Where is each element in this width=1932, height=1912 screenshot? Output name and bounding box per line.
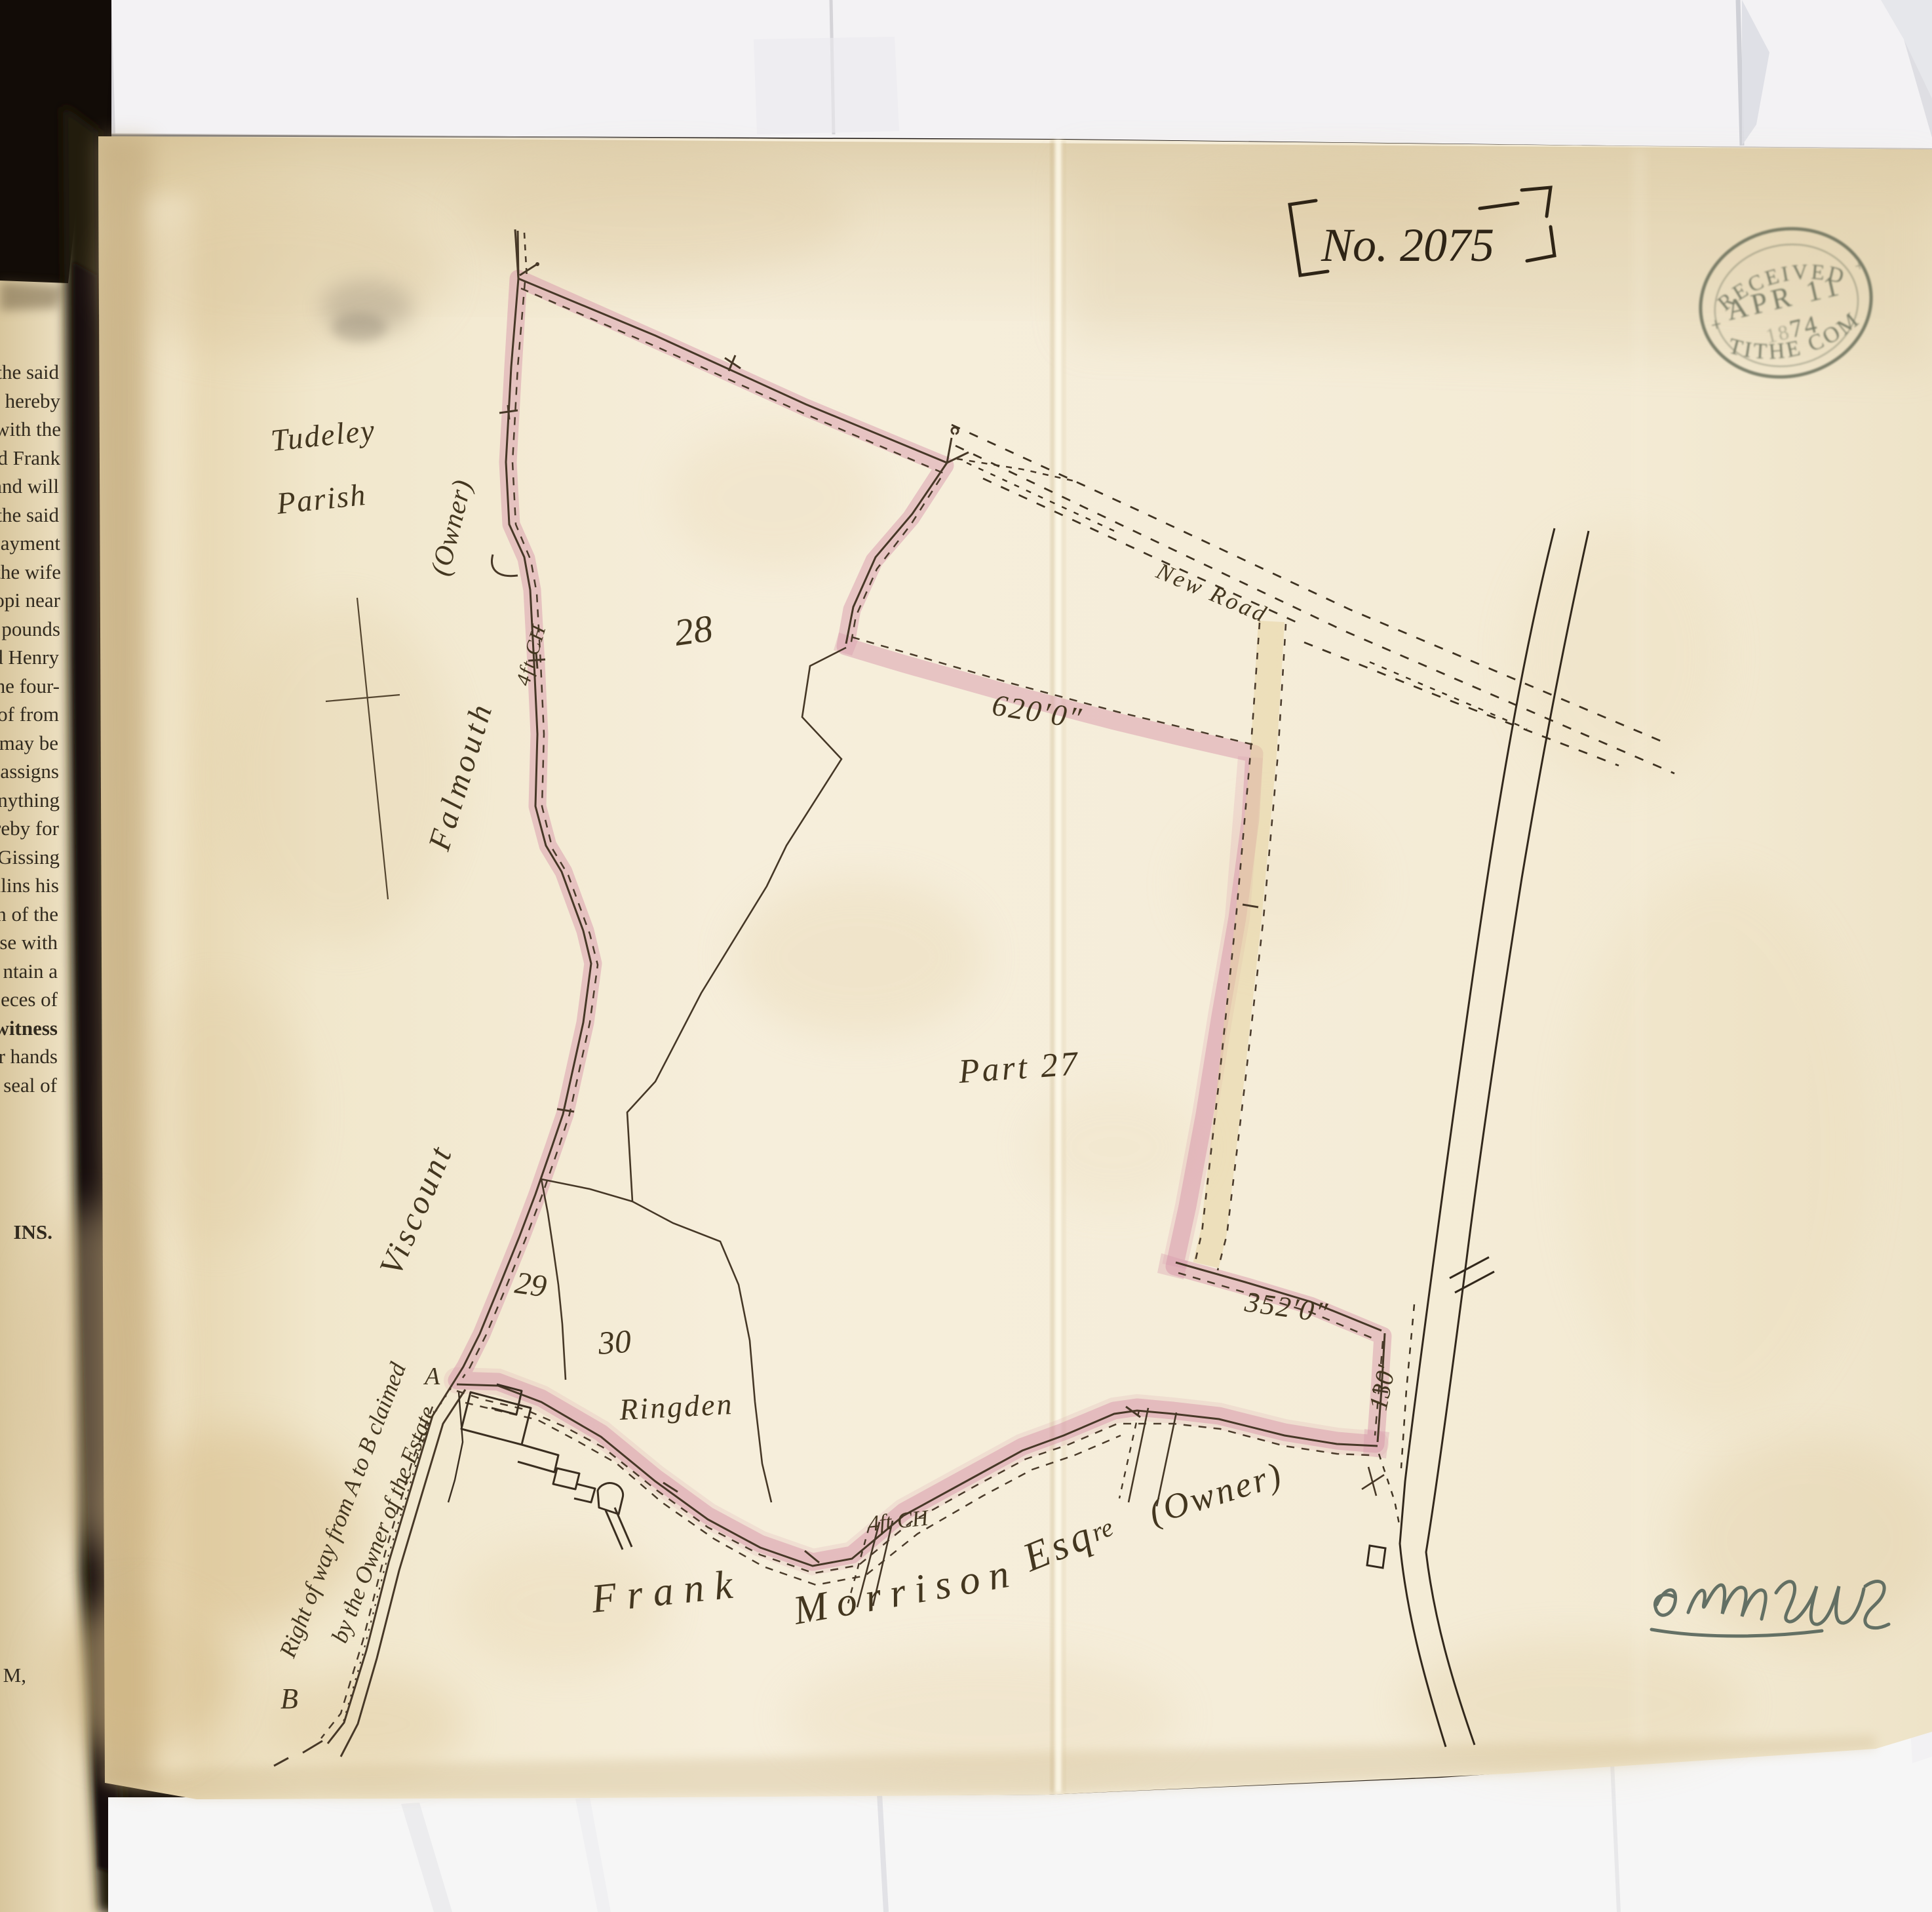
svg-text:A: A: [423, 1363, 440, 1390]
svg-text:r assigns: r assigns: [0, 760, 59, 783]
svg-text:29: 29: [512, 1265, 549, 1304]
svg-text:ereby for: ereby for: [0, 817, 60, 840]
svg-text:n of the: n of the: [0, 903, 58, 926]
svg-text:witness: witness: [0, 1017, 58, 1040]
svg-text:the four-: the four-: [0, 674, 60, 697]
svg-text:the said: the said: [0, 503, 59, 526]
svg-text:t with the: t with the: [0, 418, 61, 440]
svg-text:Gissing: Gissing: [0, 846, 60, 868]
svg-text:d pounds: d pounds: [0, 617, 60, 640]
svg-text:se with: se with: [0, 931, 58, 954]
svg-text:l of from: l of from: [0, 703, 59, 726]
svg-text:el the wife: el the wife: [0, 560, 61, 583]
svg-text:anything: anything: [0, 789, 60, 811]
svg-text:ntain a: ntain a: [3, 960, 58, 983]
svg-text:eces of: eces of: [1, 988, 58, 1011]
svg-text:r hands: r hands: [0, 1045, 58, 1068]
svg-text:B: B: [280, 1683, 298, 1715]
svg-text:e payment: e payment: [0, 532, 60, 555]
svg-text:of the said: of the said: [0, 361, 59, 383]
svg-text:d Henry: d Henry: [0, 646, 59, 669]
svg-text:INS.: INS.: [14, 1220, 52, 1243]
svg-text:M,: M,: [3, 1664, 26, 1687]
svg-text:seal of: seal of: [3, 1074, 57, 1097]
svg-text:th hereby: th hereby: [0, 389, 60, 412]
svg-text:30: 30: [596, 1323, 632, 1361]
svg-text:aid Frank: aid Frank: [0, 446, 60, 469]
svg-text:Ringden: Ringden: [618, 1387, 735, 1426]
svg-text:ll and will: ll and will: [0, 475, 59, 498]
svg-text:28: 28: [672, 606, 715, 654]
svg-text:may be: may be: [0, 732, 58, 754]
svg-text:llins his: llins his: [0, 874, 59, 897]
svg-text:No. 2075: No. 2075: [1321, 219, 1494, 271]
svg-text:copi near: copi near: [0, 589, 61, 612]
